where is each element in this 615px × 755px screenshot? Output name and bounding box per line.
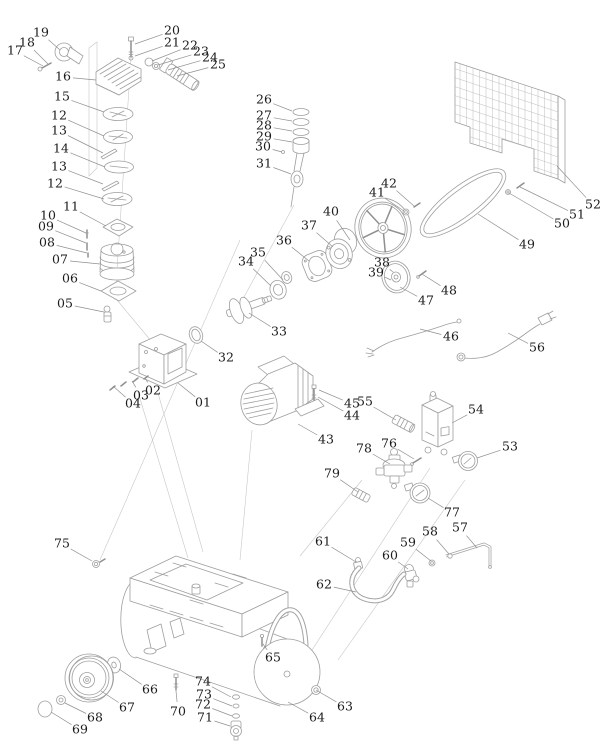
part-label-08: 08 — [39, 235, 55, 250]
leader-line-32 — [201, 341, 218, 352]
leader-line-11 — [80, 212, 106, 226]
part-label-31: 31 — [256, 156, 272, 171]
outlet-pipe — [446, 544, 491, 568]
part-label-61: 61 — [315, 534, 331, 549]
leader-line-70 — [176, 691, 177, 702]
part-label-66: 66 — [142, 682, 158, 697]
part-label-33: 33 — [271, 324, 287, 339]
leader-line-57 — [467, 536, 478, 548]
cylinder-head — [96, 58, 141, 95]
leader-line-15 — [71, 100, 104, 112]
leader-line-27 — [274, 118, 292, 121]
part-label-51: 51 — [569, 207, 585, 222]
valve-plate-stack — [101, 108, 134, 237]
part-label-70: 70 — [170, 704, 186, 719]
bolt-70 — [174, 674, 178, 690]
part-label-35: 35 — [250, 245, 266, 260]
part-label-46: 46 — [443, 329, 459, 344]
diagram-canvas: 1718191615121314131211100908070605202122… — [0, 0, 615, 755]
part-label-21: 21 — [164, 35, 180, 50]
nut-washer — [145, 58, 160, 70]
part-label-67: 67 — [119, 700, 135, 715]
leader-line-56 — [508, 333, 528, 343]
part-label-47: 47 — [418, 293, 434, 308]
part-label-14: 14 — [53, 141, 69, 156]
leader-line-49 — [478, 214, 519, 240]
leader-line-58 — [437, 540, 450, 554]
leader-line-01 — [178, 383, 195, 397]
leader-line-69 — [51, 712, 72, 725]
flywheel-washer — [403, 203, 420, 215]
leader-line-14 — [70, 153, 105, 167]
part-label-48: 48 — [441, 283, 457, 298]
gauge-53 — [452, 452, 477, 471]
part-label-59: 59 — [400, 535, 416, 550]
part-label-50: 50 — [554, 216, 570, 231]
leader-line-71 — [215, 721, 231, 726]
part-label-71: 71 — [197, 710, 213, 725]
part-label-05: 05 — [57, 296, 73, 311]
leader-line-79 — [340, 480, 358, 492]
leader-line-59 — [416, 549, 431, 561]
exploded-parts-diagram: 1718191615121314131211100908070605202122… — [0, 0, 615, 755]
leader-line-66 — [119, 669, 142, 684]
part-label-73: 73 — [196, 687, 212, 702]
fitting-55 — [391, 414, 416, 433]
leader-line-29 — [274, 139, 292, 142]
part-label-79: 79 — [324, 466, 340, 481]
part-label-25: 25 — [210, 57, 226, 72]
part-label-55: 55 — [357, 394, 373, 409]
part-label-07: 07 — [52, 252, 68, 267]
flex-hose — [352, 568, 404, 601]
leader-line-55 — [374, 407, 396, 420]
washer-68 — [57, 696, 66, 705]
part-label-13: 13 — [51, 123, 67, 138]
cylinder — [100, 243, 134, 280]
oil-plug — [104, 306, 111, 322]
leader-line-13 — [68, 136, 103, 154]
pulley-bolt — [417, 271, 426, 278]
leader-line-31 — [273, 168, 291, 175]
leader-line-75 — [71, 549, 92, 561]
part-label-11: 11 — [63, 199, 79, 214]
part-label-12: 12 — [47, 176, 63, 191]
part-label-32: 32 — [218, 350, 234, 365]
leader-line-18 — [34, 50, 48, 64]
leader-line-52 — [557, 166, 586, 198]
leader-line-63 — [316, 690, 336, 702]
leader-line-37 — [317, 233, 334, 247]
leader-line-12 — [65, 187, 104, 199]
leader-line-48 — [422, 274, 441, 286]
leader-line-45 — [319, 390, 343, 400]
leader-line-05 — [75, 306, 104, 312]
part-label-57: 57 — [452, 520, 468, 535]
part-label-37: 37 — [301, 218, 317, 233]
part-label-40: 40 — [323, 204, 339, 219]
drain-valve — [231, 695, 242, 740]
leader-line-34 — [253, 269, 271, 286]
fitting-76 — [411, 458, 421, 465]
leader-line-78 — [373, 454, 390, 464]
gauge-77 — [404, 483, 430, 503]
ball-58 — [448, 554, 452, 558]
leader-line-68 — [65, 703, 86, 714]
head-bolt — [129, 37, 134, 60]
part-label-15: 15 — [54, 89, 70, 104]
leader-line-53 — [477, 450, 501, 458]
pressure-switch — [422, 392, 453, 456]
leader-line-43 — [298, 424, 317, 435]
leader-line-04 — [113, 386, 126, 397]
leader-line-12 — [68, 120, 104, 136]
hub-cap-69 — [38, 701, 52, 717]
part-label-19: 19 — [33, 25, 49, 40]
leader-line-54 — [452, 415, 467, 423]
leader-line-64 — [288, 702, 308, 713]
part-label-63: 63 — [337, 699, 353, 714]
leader-line-35 — [265, 260, 283, 280]
part-label-78: 78 — [356, 441, 372, 456]
drive-belt — [411, 158, 515, 248]
part-label-06: 06 — [62, 271, 78, 286]
leader-line-51 — [520, 187, 568, 211]
leader-line-06 — [79, 283, 101, 291]
leader-line-61 — [332, 547, 356, 562]
leader-line-16 — [73, 78, 96, 80]
leader-line-77 — [428, 498, 444, 508]
leader-line-17 — [24, 56, 43, 66]
piston-assembly — [282, 109, 310, 208]
part-label-74: 74 — [195, 674, 211, 689]
motor — [237, 356, 324, 428]
part-label-53: 53 — [502, 439, 518, 454]
part-label-77: 77 — [444, 505, 460, 520]
part-label-58: 58 — [422, 524, 438, 539]
part-label-49: 49 — [519, 237, 535, 252]
part-label-75: 75 — [54, 536, 70, 551]
part-label-36: 36 — [276, 233, 292, 248]
leader-line-07 — [70, 261, 100, 264]
part-label-76: 76 — [381, 436, 397, 451]
part-label-42: 42 — [381, 176, 397, 191]
part-label-30: 30 — [255, 139, 271, 154]
part-label-65: 65 — [265, 650, 281, 665]
leader-line-26 — [273, 104, 292, 111]
part-label-54: 54 — [468, 402, 484, 417]
part-label-12: 12 — [51, 108, 67, 123]
bolt-75 — [93, 559, 106, 568]
leader-line-21 — [135, 46, 163, 56]
leader-line-73 — [213, 699, 232, 706]
part-label-43: 43 — [318, 432, 334, 447]
leader-line-30 — [273, 150, 282, 153]
part-label-13: 13 — [51, 159, 67, 174]
leader-line-28 — [274, 128, 292, 131]
leader-line-50 — [509, 193, 553, 219]
part-label-64: 64 — [309, 710, 325, 725]
leader-line-13 — [68, 171, 103, 184]
part-label-56: 56 — [529, 340, 545, 355]
part-label-01: 01 — [195, 395, 211, 410]
part-label-60: 60 — [382, 548, 398, 563]
leader-line-10 — [57, 220, 86, 233]
part-label-09: 09 — [38, 219, 54, 234]
part-label-04: 04 — [125, 396, 141, 411]
part-label-68: 68 — [87, 710, 103, 725]
leader-line-20 — [135, 34, 163, 44]
mount-bracket — [38, 43, 83, 71]
part-label-39: 39 — [368, 265, 384, 280]
leader-line-36 — [292, 247, 309, 261]
part-label-62: 62 — [316, 577, 332, 592]
leader-line-72 — [212, 709, 232, 717]
part-label-52: 52 — [585, 197, 601, 212]
part-label-26: 26 — [256, 92, 272, 107]
leader-line-09 — [55, 231, 86, 243]
part-label-69: 69 — [72, 722, 88, 737]
base-gasket — [101, 281, 136, 301]
nut-59 — [429, 560, 435, 566]
flywheel — [348, 192, 418, 264]
leader-line-33 — [249, 313, 271, 327]
crankshaft — [223, 286, 276, 327]
part-label-16: 16 — [55, 69, 71, 84]
